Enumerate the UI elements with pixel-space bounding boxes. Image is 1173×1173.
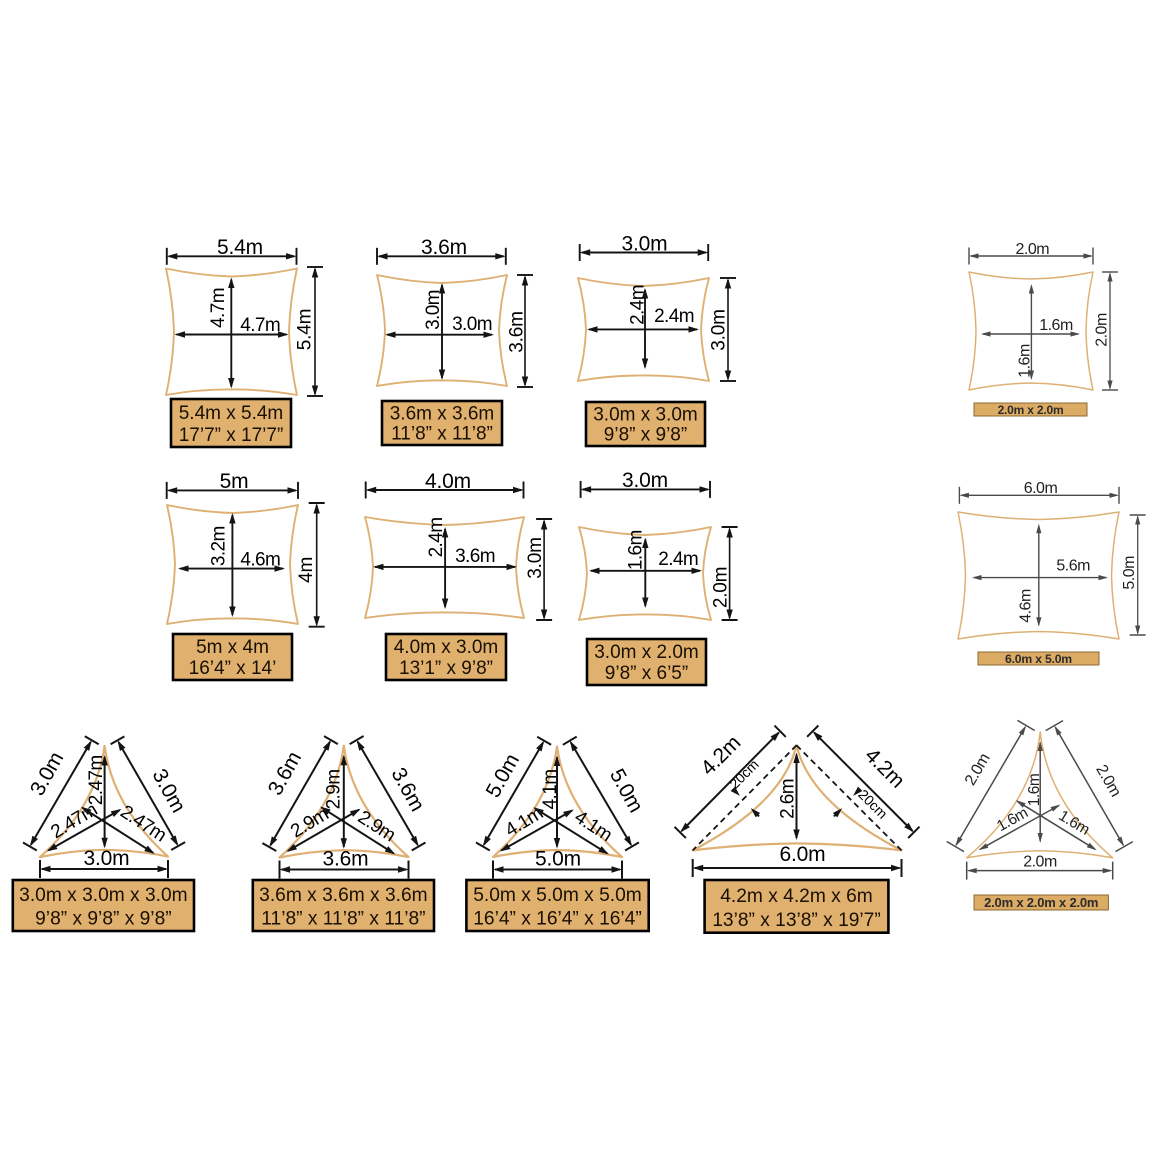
- svg-text:11’8” x 11’8” x 11’8”: 11’8” x 11’8” x 11’8”: [261, 909, 425, 930]
- svg-text:1.6m: 1.6m: [1039, 317, 1073, 334]
- svg-text:4.2m x 4.2m x 6m: 4.2m x 4.2m x 6m: [720, 886, 872, 907]
- svg-text:17’7” x 17’7”: 17’7” x 17’7”: [179, 425, 284, 446]
- svg-text:6.0m: 6.0m: [1024, 480, 1058, 497]
- svg-text:6.0m: 6.0m: [780, 843, 826, 866]
- svg-text:16’4” x 16’4” x 16’4”: 16’4” x 16’4” x 16’4”: [473, 909, 642, 930]
- svg-text:1.6m: 1.6m: [626, 530, 647, 570]
- svg-text:3.6m: 3.6m: [323, 848, 369, 871]
- svg-text:4.6m: 4.6m: [240, 550, 280, 571]
- svg-text:5.0m: 5.0m: [1121, 556, 1138, 590]
- svg-text:16’4” x 14’: 16’4” x 14’: [189, 658, 277, 679]
- svg-text:2.0m: 2.0m: [1023, 854, 1057, 871]
- svg-text:1.6m: 1.6m: [1017, 344, 1034, 378]
- svg-text:4.6m: 4.6m: [1018, 589, 1035, 623]
- svg-text:3.0m: 3.0m: [84, 847, 130, 870]
- svg-text:3.6m x 3.6m: 3.6m x 3.6m: [390, 403, 495, 424]
- svg-text:4.0m x 3.0m: 4.0m x 3.0m: [394, 637, 499, 658]
- svg-text:5.4m: 5.4m: [217, 236, 263, 259]
- svg-text:3.6m x 3.6m x 3.6m: 3.6m x 3.6m x 3.6m: [259, 885, 427, 906]
- svg-text:3.0m: 3.0m: [622, 469, 668, 492]
- svg-text:5m: 5m: [220, 470, 249, 493]
- svg-text:5.0m: 5.0m: [535, 848, 581, 871]
- svg-text:2.0m x 2.0m: 2.0m x 2.0m: [998, 403, 1064, 417]
- svg-text:3.6m: 3.6m: [506, 311, 527, 352]
- svg-text:2.4m: 2.4m: [426, 518, 447, 558]
- svg-text:2.4m: 2.4m: [628, 285, 649, 325]
- svg-text:4.1m: 4.1m: [540, 770, 561, 810]
- svg-text:1.6m: 1.6m: [1026, 774, 1043, 806]
- svg-text:2.0m: 2.0m: [1094, 313, 1111, 347]
- svg-text:2.4m: 2.4m: [654, 306, 694, 327]
- svg-text:3.6m: 3.6m: [455, 546, 495, 567]
- svg-text:9’8” x 9’8”: 9’8” x 9’8”: [604, 425, 687, 446]
- svg-text:9’8” x 6’5”: 9’8” x 6’5”: [605, 663, 688, 684]
- svg-text:4m: 4m: [296, 557, 317, 583]
- svg-text:3.0m: 3.0m: [708, 309, 729, 350]
- svg-text:3.0m: 3.0m: [622, 232, 668, 255]
- svg-text:2.0m: 2.0m: [711, 567, 732, 608]
- svg-text:2.4m: 2.4m: [658, 549, 698, 570]
- svg-text:3.0m x 2.0m: 3.0m x 2.0m: [594, 642, 699, 663]
- svg-text:3.0m x 3.0m: 3.0m x 3.0m: [593, 404, 698, 425]
- svg-text:4.7m: 4.7m: [240, 315, 280, 336]
- svg-text:3.0m: 3.0m: [452, 314, 492, 335]
- svg-text:3.0m: 3.0m: [423, 290, 444, 330]
- svg-text:4.7m: 4.7m: [208, 288, 229, 328]
- svg-text:3.0m x 3.0m x 3.0m: 3.0m x 3.0m x 3.0m: [19, 885, 187, 906]
- svg-text:4.0m: 4.0m: [425, 470, 471, 493]
- svg-text:3.6m: 3.6m: [421, 236, 467, 259]
- svg-text:11’8” x 11’8”: 11’8” x 11’8”: [391, 424, 493, 445]
- svg-text:3.0m: 3.0m: [525, 537, 546, 578]
- svg-text:13’1” x 9’8”: 13’1” x 9’8”: [399, 658, 493, 679]
- svg-text:5.4m x 5.4m: 5.4m x 5.4m: [179, 403, 284, 424]
- svg-text:2.9m: 2.9m: [323, 770, 344, 810]
- svg-text:5m x 4m: 5m x 4m: [196, 637, 269, 658]
- svg-text:2.6m: 2.6m: [778, 779, 799, 819]
- svg-text:3.2m: 3.2m: [209, 526, 230, 566]
- svg-text:2.47m: 2.47m: [86, 755, 107, 805]
- svg-text:9’8” x 9’8” x 9’8”: 9’8” x 9’8” x 9’8”: [35, 909, 172, 930]
- svg-text:2.0m: 2.0m: [1016, 241, 1050, 258]
- svg-text:5.0m x 5.0m x 5.0m: 5.0m x 5.0m x 5.0m: [473, 885, 641, 906]
- svg-text:5.4m: 5.4m: [294, 309, 315, 350]
- svg-text:6.0m x 5.0m: 6.0m x 5.0m: [1005, 652, 1072, 666]
- svg-text:2.0m x 2.0m x 2.0m: 2.0m x 2.0m x 2.0m: [984, 895, 1098, 910]
- svg-text:13’8” x 13’8” x 19’7”: 13’8” x 13’8” x 19’7”: [712, 910, 881, 931]
- svg-text:5.6m: 5.6m: [1056, 558, 1090, 575]
